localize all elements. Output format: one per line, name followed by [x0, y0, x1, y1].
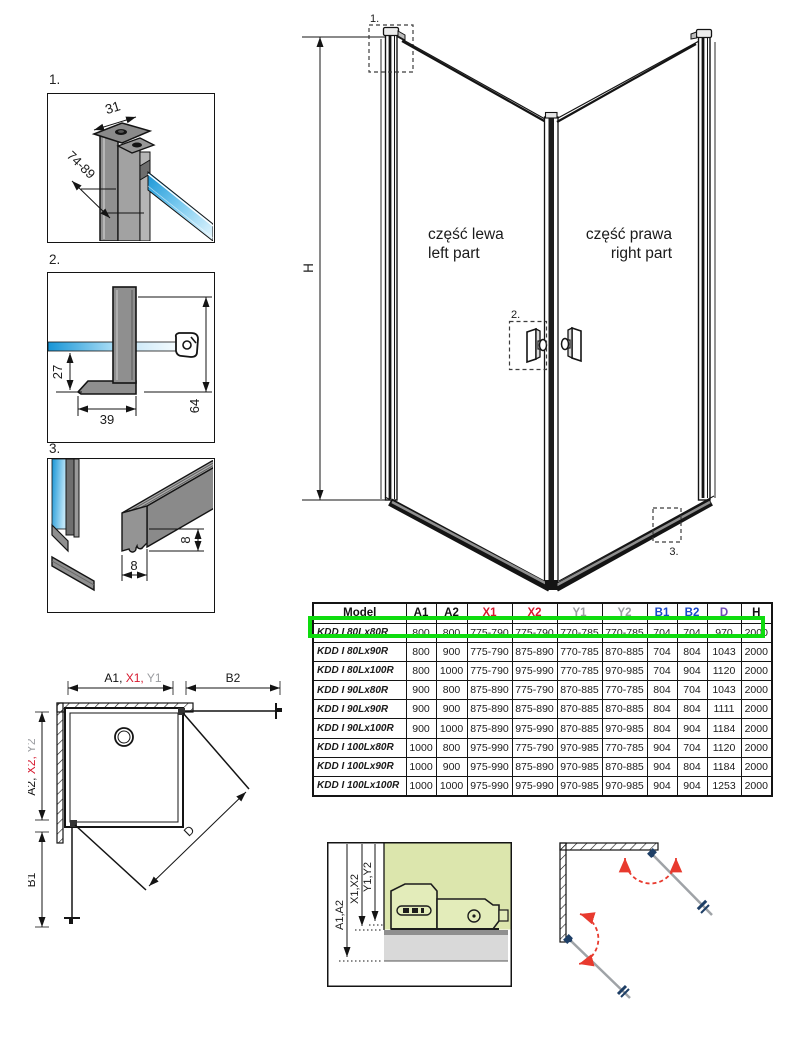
- dim-label-b2: B2: [226, 671, 241, 685]
- value-cell: 800: [436, 623, 467, 642]
- value-cell: 804: [677, 700, 707, 719]
- left-part-label-en: left part: [428, 245, 480, 262]
- value-cell: 704: [677, 681, 707, 700]
- left-door-handle: [527, 329, 547, 362]
- value-cell: 800: [436, 681, 467, 700]
- value-cell: 800: [406, 642, 436, 661]
- value-cell: 870-885: [557, 700, 602, 719]
- callout-1-label: 1.: [370, 13, 379, 25]
- value-cell: 1120: [707, 738, 741, 757]
- height-dimension: H: [301, 37, 398, 500]
- value-cell: 975-990: [467, 757, 512, 776]
- right-wall-profile: [691, 30, 715, 501]
- column-header: Y2: [602, 603, 647, 623]
- right-glass-top-edge: [557, 41, 699, 122]
- table-row: KDD I 80Lx100R8001000775-790975-990770-7…: [313, 661, 772, 680]
- glass-panel: [148, 172, 213, 241]
- value-cell: 775-790: [512, 738, 557, 757]
- dim-label-y1y2: Y1,Y2: [362, 862, 374, 892]
- value-cell: 770-785: [557, 661, 602, 680]
- threshold-profile: [122, 459, 213, 552]
- value-cell: 804: [647, 719, 677, 738]
- value-cell: 770-785: [602, 738, 647, 757]
- wall-profile-isometric: [94, 123, 154, 241]
- value-cell: 900: [436, 700, 467, 719]
- value-cell: 904: [677, 661, 707, 680]
- value-cell: 770-785: [557, 623, 602, 642]
- value-cell: 975-990: [467, 738, 512, 757]
- value-cell: 775-790: [467, 642, 512, 661]
- dim-label-a1a2: A1,A2: [334, 900, 346, 930]
- value-cell: 2000: [741, 757, 772, 776]
- value-cell: 704: [647, 623, 677, 642]
- column-header: Model: [313, 603, 406, 623]
- right-door-handle: [562, 328, 582, 361]
- right-door-open: [647, 848, 712, 915]
- left-wall-profile: [381, 28, 405, 501]
- value-cell: 1253: [707, 777, 741, 796]
- value-cell: 2000: [741, 700, 772, 719]
- value-cell: 900: [406, 700, 436, 719]
- main-enclosure-drawing: H 1.: [300, 10, 791, 595]
- value-cell: 770-785: [602, 681, 647, 700]
- value-cell: 770-785: [557, 642, 602, 661]
- column-header: D: [707, 603, 741, 623]
- column-header: X2: [512, 603, 557, 623]
- value-cell: 800: [406, 661, 436, 680]
- left-dimension: A2, X2, Y2 B1: [28, 712, 49, 927]
- value-cell: 1120: [707, 661, 741, 680]
- value-cell: 875-890: [512, 757, 557, 776]
- value-cell: 870-885: [557, 719, 602, 738]
- value-cell: 2000: [741, 661, 772, 680]
- value-cell: 900: [436, 642, 467, 661]
- right-part-label-en: right part: [611, 245, 673, 262]
- value-cell: 870-885: [557, 681, 602, 700]
- value-cell: 900: [406, 719, 436, 738]
- dim-label-74-89: 74-89: [64, 148, 98, 182]
- callout-2-label: 2.: [511, 309, 520, 321]
- dimension-table: ModelA1A2X1X2Y1Y2B1B2DH KDD I 80Lx80R800…: [312, 602, 773, 797]
- value-cell: 800: [406, 623, 436, 642]
- dimension-64: 64: [138, 297, 212, 413]
- value-cell: 804: [677, 757, 707, 776]
- table-row: KDD I 100Lx80R1000800975-990775-790970-9…: [313, 738, 772, 757]
- callout-3-label: 3.: [669, 546, 678, 558]
- value-cell: 804: [677, 642, 707, 661]
- door-swing-drawing: [555, 835, 791, 1010]
- corner-walls: [560, 843, 658, 942]
- dimension-27: 27: [50, 353, 82, 392]
- section-detail-drawing: A1,A2 X1,X2 Y1,Y2: [327, 842, 512, 987]
- value-cell: 1000: [406, 777, 436, 796]
- value-cell: 904: [647, 738, 677, 757]
- model-cell: KDD I 80Lx90R: [313, 642, 406, 661]
- value-cell: 970-985: [602, 661, 647, 680]
- plan-view-drawing: A1, X1, Y1 B2 A2, X2, Y2 B1: [28, 655, 300, 965]
- value-cell: 875-890: [467, 681, 512, 700]
- model-cell: KDD I 80Lx80R: [313, 623, 406, 642]
- value-cell: 900: [406, 681, 436, 700]
- column-header: Y1: [557, 603, 602, 623]
- value-cell: 970-985: [602, 777, 647, 796]
- dim-label-a2x2y2: A2, X2, Y2: [28, 738, 38, 796]
- value-cell: 2000: [741, 777, 772, 796]
- dimension-39: 39: [78, 396, 136, 427]
- technical-drawing-page: 1.: [0, 0, 791, 1045]
- detail-3-box: 8 8: [47, 458, 215, 613]
- value-cell: 1000: [406, 738, 436, 757]
- value-cell: 804: [647, 681, 677, 700]
- handle-section: [176, 333, 198, 357]
- table-body: KDD I 80Lx80R800800775-790775-790770-785…: [313, 623, 772, 796]
- model-cell: KDD I 90Lx100R: [313, 719, 406, 738]
- value-cell: 904: [647, 757, 677, 776]
- value-cell: 975-990: [512, 719, 557, 738]
- detail-1-drawing: 31 74-89: [48, 94, 213, 241]
- model-cell: KDD I 90Lx90R: [313, 700, 406, 719]
- value-cell: 2000: [741, 738, 772, 757]
- value-cell: 970-985: [557, 757, 602, 776]
- value-cell: 704: [647, 661, 677, 680]
- value-cell: 2000: [741, 681, 772, 700]
- table-row: KDD I 90Lx90R900900875-890875-890870-885…: [313, 700, 772, 719]
- dim-label-x1x2: X1,X2: [349, 874, 361, 904]
- top-dimension: A1, X1, Y1 B2: [68, 671, 280, 695]
- value-cell: 770-785: [602, 623, 647, 642]
- value-cell: 870-885: [602, 642, 647, 661]
- detail-3-label: 3.: [49, 441, 60, 456]
- left-part-label-pl: część lewa: [428, 226, 504, 243]
- right-part-label-pl: część prawa: [586, 226, 673, 243]
- left-glass-top-edge: [398, 37, 546, 122]
- column-header: H: [741, 603, 772, 623]
- value-cell: 975-990: [512, 777, 557, 796]
- value-cell: 775-790: [467, 623, 512, 642]
- value-cell: 870-885: [602, 757, 647, 776]
- value-cell: 2000: [741, 642, 772, 661]
- value-cell: 975-990: [512, 661, 557, 680]
- model-cell: KDD I 100Lx100R: [313, 777, 406, 796]
- dim-label-b1: B1: [28, 872, 38, 887]
- glass-and-profile: [52, 459, 94, 590]
- dim-label-8h: 8: [178, 536, 193, 543]
- value-cell: 2000: [741, 623, 772, 642]
- column-header: B1: [647, 603, 677, 623]
- value-cell: 1000: [436, 777, 467, 796]
- value-cell: 975-990: [467, 777, 512, 796]
- table-row: KDD I 100Lx100R10001000975-990975-990970…: [313, 777, 772, 796]
- detail-2-box: 27 39 64: [47, 272, 215, 443]
- value-cell: 2000: [741, 719, 772, 738]
- dim-label-39: 39: [100, 412, 114, 427]
- value-cell: 1000: [436, 661, 467, 680]
- value-cell: 970: [707, 623, 741, 642]
- table-row: KDD I 80Lx80R800800775-790775-790770-785…: [313, 623, 772, 642]
- detail-1-box: 31 74-89: [47, 93, 215, 243]
- value-cell: 970-985: [557, 738, 602, 757]
- dimension-8-horizontal: 8: [122, 549, 147, 581]
- detail-1-label: 1.: [49, 72, 60, 87]
- value-cell: 1111: [707, 700, 741, 719]
- column-header: B2: [677, 603, 707, 623]
- value-cell: 904: [677, 777, 707, 796]
- value-cell: 775-790: [512, 623, 557, 642]
- model-cell: KDD I 100Lx80R: [313, 738, 406, 757]
- value-cell: 800: [436, 738, 467, 757]
- table-row: KDD I 90Lx100R9001000875-890975-990870-8…: [313, 719, 772, 738]
- column-header: X1: [467, 603, 512, 623]
- value-cell: 875-890: [467, 719, 512, 738]
- table-row: KDD I 80Lx90R800900775-790875-890770-785…: [313, 642, 772, 661]
- value-cell: 1043: [707, 681, 741, 700]
- value-cell: 1000: [436, 719, 467, 738]
- model-cell: KDD I 90Lx80R: [313, 681, 406, 700]
- value-cell: 904: [647, 777, 677, 796]
- value-cell: 875-890: [467, 700, 512, 719]
- detail-3-drawing: 8 8: [48, 459, 213, 611]
- detail-2-label: 2.: [49, 252, 60, 267]
- value-cell: 870-885: [602, 700, 647, 719]
- left-door-open: [563, 934, 630, 998]
- profile-section: [78, 287, 136, 394]
- dim-label-27: 27: [50, 365, 65, 379]
- value-cell: 1184: [707, 719, 741, 738]
- dim-label-8w: 8: [130, 558, 137, 573]
- table-header-row: ModelA1A2X1X2Y1Y2B1B2DH: [313, 603, 772, 623]
- table-row: KDD I 100Lx90R1000900975-990875-890970-9…: [313, 757, 772, 776]
- table-row: KDD I 90Lx80R900800875-890775-790870-885…: [313, 681, 772, 700]
- value-cell: 970-985: [557, 777, 602, 796]
- value-cell: 900: [436, 757, 467, 776]
- value-cell: 875-890: [512, 642, 557, 661]
- value-cell: 804: [647, 700, 677, 719]
- model-cell: KDD I 100Lx90R: [313, 757, 406, 776]
- value-cell: 704: [677, 738, 707, 757]
- dim-label-a1x1y1: A1, X1, Y1: [104, 671, 161, 685]
- dim-label-64: 64: [187, 399, 202, 413]
- dim-label-H: H: [301, 263, 316, 273]
- value-cell: 704: [677, 623, 707, 642]
- detail-2-drawing: 27 39 64: [48, 273, 213, 441]
- value-cell: 875-890: [512, 700, 557, 719]
- shower-tray: [65, 708, 185, 827]
- column-header: A1: [406, 603, 436, 623]
- value-cell: 704: [647, 642, 677, 661]
- model-cell: KDD I 80Lx100R: [313, 661, 406, 680]
- section-dimensions: A1,A2 X1,X2 Y1,Y2: [334, 844, 383, 961]
- value-cell: 1043: [707, 642, 741, 661]
- value-cell: 1000: [406, 757, 436, 776]
- column-header: A2: [436, 603, 467, 623]
- value-cell: 775-790: [467, 661, 512, 680]
- value-cell: 1184: [707, 757, 741, 776]
- value-cell: 904: [677, 719, 707, 738]
- dim-label-31: 31: [103, 98, 122, 117]
- value-cell: 970-985: [602, 719, 647, 738]
- value-cell: 775-790: [512, 681, 557, 700]
